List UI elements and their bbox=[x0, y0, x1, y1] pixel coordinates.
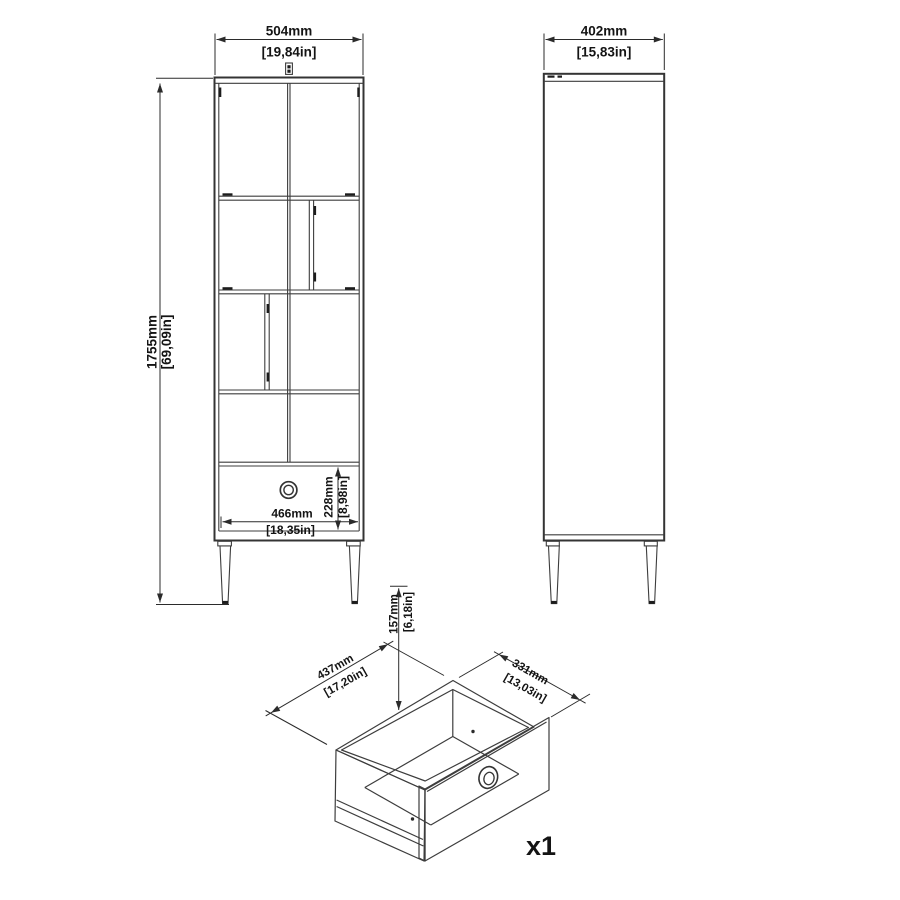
side-depth-in: [15,83in] bbox=[577, 45, 632, 60]
drawer-rim-inner bbox=[342, 690, 529, 782]
quantity-label: x1 bbox=[526, 831, 556, 861]
technical-drawing-canvas: 504mm [19,84in] 1755mm [69,09in] 466mm [… bbox=[0, 0, 900, 900]
drawer-rim-outer bbox=[336, 681, 534, 791]
drawer-knob-front-inner bbox=[284, 485, 293, 494]
drawer-front-height-in: [8,98in] bbox=[336, 476, 350, 518]
drawer-knob-iso-inner bbox=[482, 771, 495, 786]
front-shelf-lines bbox=[219, 196, 359, 466]
front-width-mm: 504mm bbox=[266, 24, 313, 39]
front-divider-center bbox=[288, 83, 290, 462]
dim-drawer-front-height: 228mm [8,98in] bbox=[322, 468, 351, 530]
drawer-interior bbox=[365, 690, 519, 826]
screw-hole-dot bbox=[471, 730, 474, 733]
drawer-knob-front bbox=[280, 482, 297, 499]
cam-lock-detail bbox=[286, 63, 293, 74]
front-width-in: [19,84in] bbox=[262, 45, 317, 60]
front-height-mm: 1755mm bbox=[145, 315, 160, 369]
screw-hole-dot bbox=[411, 817, 414, 820]
dim-side-depth: 402mm [15,83in] bbox=[544, 24, 664, 71]
drawer-isometric-view: 157mm [6,18in] 437mm [17,20in] 331mm [13… bbox=[266, 586, 591, 861]
front-height-in: [69,09in] bbox=[159, 315, 174, 370]
technical-drawing-page: 504mm [19,84in] 1755mm [69,09in] 466mm [… bbox=[0, 0, 900, 900]
side-view: 402mm [15,83in] bbox=[544, 24, 665, 604]
side-depth-mm: 402mm bbox=[581, 24, 628, 39]
drawer-side-panel bbox=[335, 750, 425, 861]
drawer-height-in: [6,18in] bbox=[403, 592, 415, 632]
dim-drawer-depth: 331mm [13,03in] bbox=[459, 652, 590, 717]
dim-front-height: 1755mm [69,09in] bbox=[145, 78, 230, 604]
drawer-height-mm: 157mm bbox=[389, 594, 401, 634]
side-fitting-marks bbox=[548, 76, 563, 78]
dim-drawer-height: 157mm [6,18in] bbox=[389, 586, 416, 710]
front-fitting-marks bbox=[219, 88, 360, 382]
front-divider-section2 bbox=[309, 200, 313, 290]
dim-drawer-width: 437mm [17,20in] bbox=[266, 641, 445, 744]
side-legs bbox=[546, 541, 657, 604]
side-carcass-outline bbox=[544, 74, 664, 541]
front-carcass-outline bbox=[215, 78, 364, 541]
drawer-front-width-in: [18,35in] bbox=[266, 523, 315, 537]
drawer-front-height-mm: 228mm bbox=[322, 476, 336, 517]
front-view: 504mm [19,84in] 1755mm [69,09in] 466mm [… bbox=[145, 24, 364, 605]
front-legs bbox=[218, 541, 360, 604]
drawer-front-width-mm: 466mm bbox=[271, 507, 312, 521]
